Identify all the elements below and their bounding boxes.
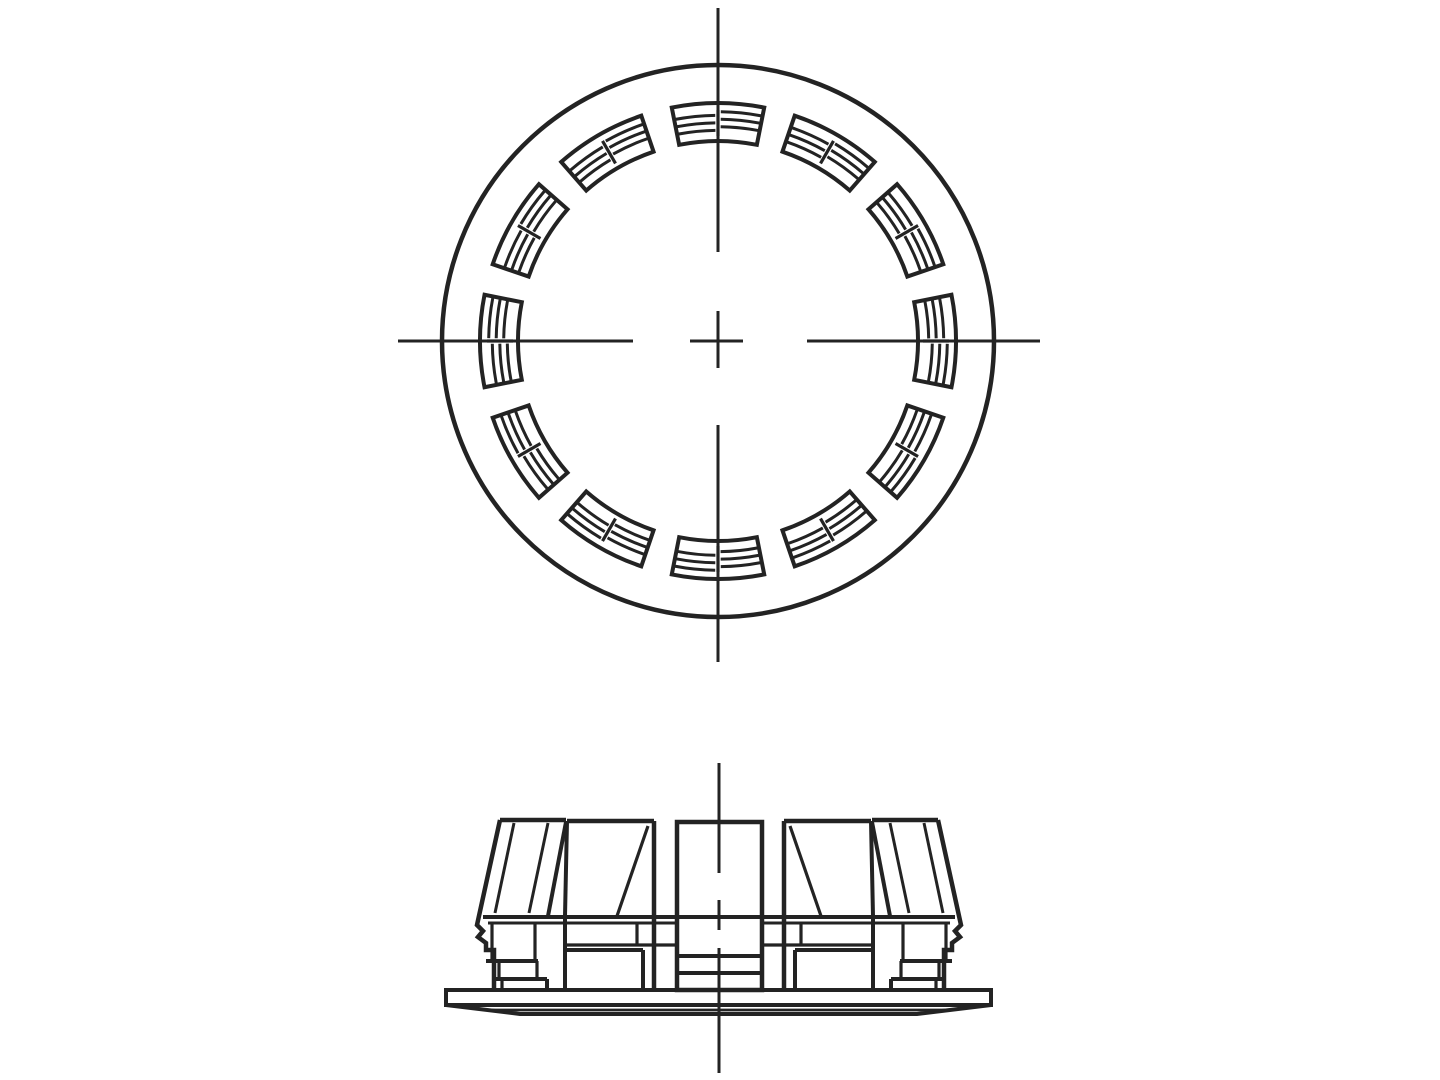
- side-view-elevation: [446, 763, 991, 1073]
- serration-rib: [492, 344, 496, 384]
- serration-rib: [504, 300, 508, 338]
- serration-rib: [676, 559, 715, 563]
- serration-rib: [721, 555, 760, 559]
- serration-rib: [721, 548, 758, 552]
- serration-rib: [489, 298, 493, 339]
- fin-pad: [493, 405, 568, 497]
- fin-pad-outline: [868, 405, 943, 497]
- fin-face-line: [790, 826, 821, 916]
- serration-rib: [512, 234, 528, 269]
- serration-rib: [675, 566, 716, 570]
- serration-rib: [905, 236, 921, 271]
- serration-rib: [826, 500, 856, 522]
- fin-pad: [561, 116, 653, 191]
- serration-rib: [908, 412, 924, 447]
- serration-rib: [516, 411, 532, 446]
- serration-rib: [537, 449, 559, 479]
- serration-rib: [611, 531, 646, 547]
- fin-face-line: [529, 823, 548, 913]
- serration-rib: [580, 160, 610, 182]
- fin-pad: [493, 184, 568, 276]
- fin-pad: [868, 184, 943, 276]
- serration-rib: [943, 344, 947, 385]
- fin-pad-outline: [782, 116, 874, 191]
- serration-rib: [613, 139, 648, 155]
- serration-rib: [925, 301, 929, 338]
- serration-rib: [721, 563, 761, 567]
- serration-rib: [721, 119, 760, 123]
- fin-pad-outline: [561, 491, 653, 566]
- serration-rib: [789, 135, 824, 151]
- drawing-page: [0, 0, 1440, 1080]
- serration-rib: [788, 528, 823, 544]
- fin-pad-outline: [493, 184, 568, 276]
- serration-rib: [677, 123, 716, 127]
- serration-rib: [721, 112, 762, 116]
- fin-pad: [868, 405, 943, 497]
- serration-rib: [500, 344, 504, 383]
- serration-rib: [877, 203, 899, 233]
- serration-rib: [496, 299, 500, 338]
- fin-pad: [782, 116, 874, 191]
- serration-rib: [940, 298, 944, 338]
- serration-rib: [721, 127, 759, 131]
- serration-rib: [936, 344, 940, 383]
- serration-rib: [675, 115, 715, 119]
- fin-face-line: [890, 823, 909, 913]
- serration-rib: [928, 344, 932, 382]
- hole-plug-technical-drawing: [0, 0, 1440, 1080]
- serration-rib: [507, 344, 511, 381]
- serration-rib: [932, 300, 936, 339]
- serration-rib: [678, 130, 715, 134]
- top-view-plan: [398, 8, 1040, 662]
- fin-pad: [561, 491, 653, 566]
- fin-pad: [782, 491, 874, 566]
- serration-rib: [677, 551, 715, 555]
- fin-edge: [565, 821, 567, 916]
- fin-face-line: [617, 826, 648, 916]
